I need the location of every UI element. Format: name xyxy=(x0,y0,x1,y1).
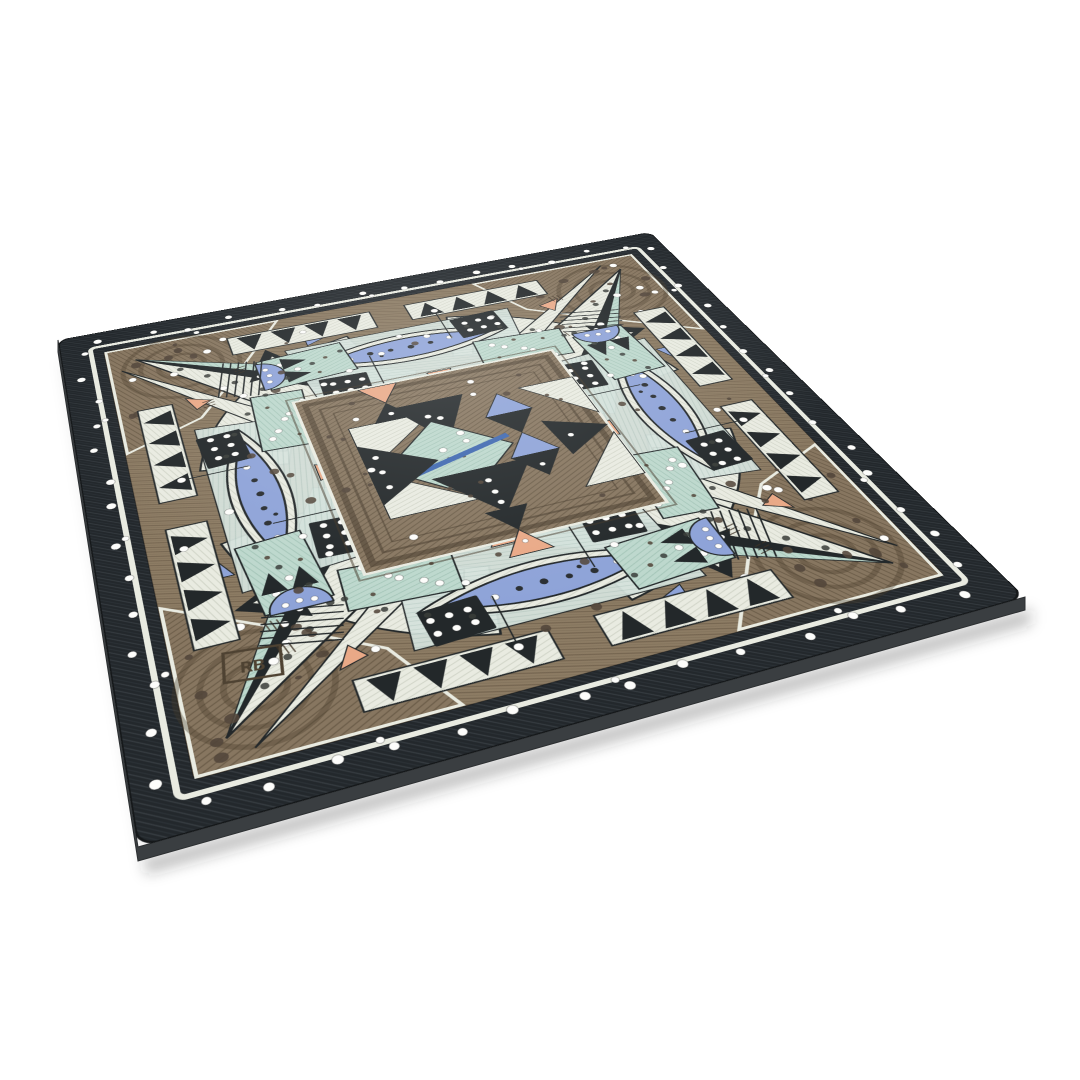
photo-canvas: RB xyxy=(0,0,1080,1080)
